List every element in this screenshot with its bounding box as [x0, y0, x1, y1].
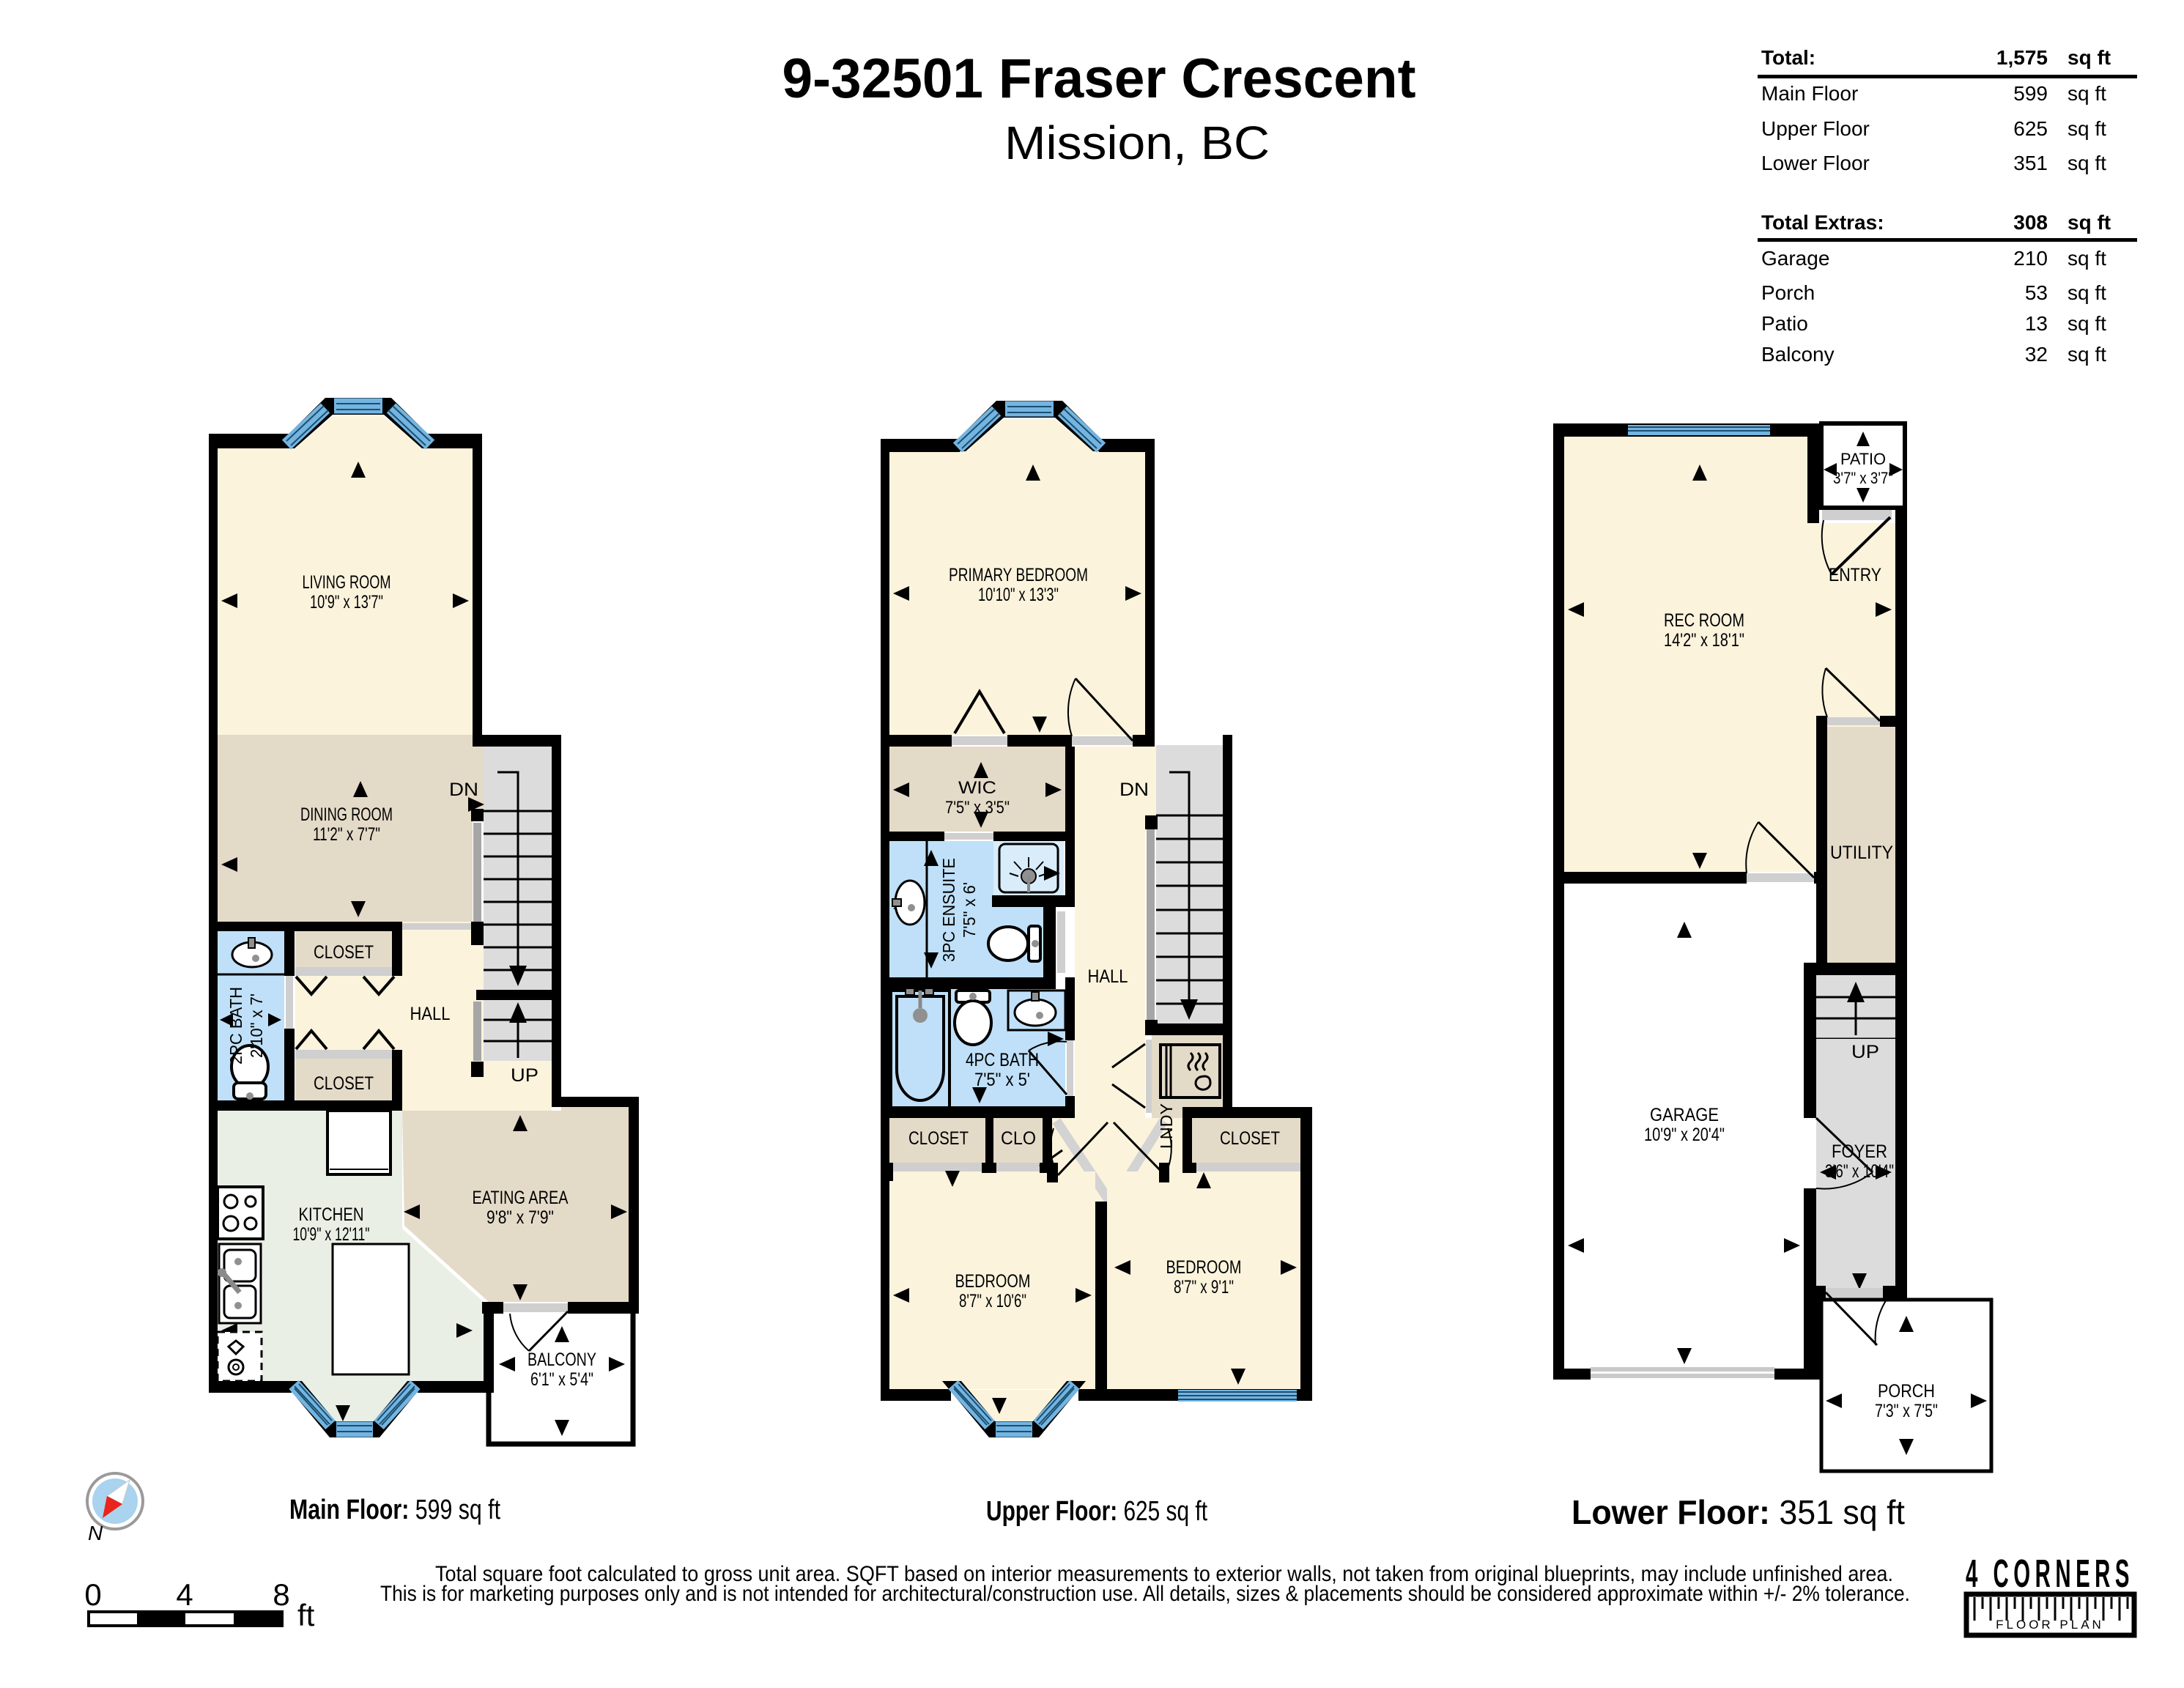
svg-text:BALCONY: BALCONY [528, 1350, 596, 1370]
svg-text:CLOSET: CLOSET [908, 1128, 969, 1149]
svg-text:Patio: Patio [1761, 312, 1808, 335]
svg-text:7'5" x 5': 7'5" x 5' [974, 1070, 1030, 1090]
svg-text:BEDROOM: BEDROOM [1166, 1257, 1242, 1278]
svg-text:4PC BATH: 4PC BATH [966, 1050, 1039, 1070]
svg-text:9'8" x 7'9": 9'8" x 7'9" [486, 1207, 554, 1228]
svg-text:ft: ft [297, 1598, 315, 1632]
svg-text:8: 8 [273, 1577, 289, 1612]
svg-text:CLOSET: CLOSET [1220, 1128, 1280, 1149]
svg-text:PRIMARY BEDROOM: PRIMARY BEDROOM [949, 565, 1088, 585]
svg-text:8'7" x 10'6": 8'7" x 10'6" [959, 1291, 1026, 1311]
svg-text:10'10" x 13'3": 10'10" x 13'3" [978, 585, 1059, 605]
svg-text:10'9" x 20'4": 10'9" x 20'4" [1644, 1125, 1725, 1145]
svg-text:CLOSET: CLOSET [314, 942, 374, 963]
svg-text:10'9" x 12'11": 10'9" x 12'11" [293, 1224, 370, 1245]
svg-text:3'7" x 3'7": 3'7" x 3'7" [1833, 469, 1893, 487]
svg-text:308: 308 [2013, 211, 2048, 234]
svg-text:HALL: HALL [1088, 966, 1128, 987]
svg-text:351: 351 [2013, 152, 2048, 174]
svg-text:10'9" x 13'7": 10'9" x 13'7" [310, 592, 383, 612]
svg-text:Mission, BC: Mission, BC [1004, 116, 1270, 169]
svg-text:sq ft: sq ft [2068, 152, 2106, 174]
svg-text:GARAGE: GARAGE [1650, 1105, 1719, 1125]
svg-text:Lower Floor: 351 sq ft: Lower Floor: 351 sq ft [1572, 1493, 1905, 1531]
svg-text:53: 53 [2025, 281, 2048, 304]
svg-text:sq ft: sq ft [2068, 247, 2106, 270]
svg-text:210: 210 [2013, 247, 2048, 270]
svg-text:0: 0 [84, 1577, 101, 1612]
svg-text:7'5" x 6': 7'5" x 6' [960, 882, 979, 938]
svg-text:CLO: CLO [1001, 1128, 1036, 1149]
svg-text:13: 13 [2025, 312, 2048, 335]
svg-text:HALL: HALL [410, 1004, 451, 1024]
svg-text:REC ROOM: REC ROOM [1664, 610, 1744, 631]
svg-text:6'1" x 5'4": 6'1" x 5'4" [530, 1369, 593, 1390]
svg-text:11'2" x 7'7": 11'2" x 7'7" [313, 824, 380, 845]
svg-text:Balcony: Balcony [1761, 343, 1835, 366]
svg-text:599: 599 [2013, 82, 2048, 105]
svg-text:Garage: Garage [1761, 247, 1829, 270]
svg-text:EATING AREA: EATING AREA [473, 1188, 569, 1208]
svg-text:UP: UP [511, 1065, 538, 1086]
svg-text:This is for marketing purposes: This is for marketing purposes only and … [380, 1582, 1910, 1606]
svg-text:sq ft: sq ft [2068, 343, 2106, 366]
svg-text:PORCH: PORCH [1878, 1381, 1935, 1402]
svg-text:32: 32 [2025, 343, 2048, 366]
svg-text:3PC ENSUITE: 3PC ENSUITE [939, 858, 958, 962]
svg-text:sq ft: sq ft [2068, 211, 2111, 234]
svg-text:N: N [88, 1522, 103, 1544]
svg-text:sq ft: sq ft [2068, 82, 2106, 105]
svg-text:Main Floor: Main Floor [1761, 82, 1858, 105]
svg-text:WIC: WIC [958, 778, 996, 798]
svg-text:Upper Floor: 625 sq ft: Upper Floor: 625 sq ft [986, 1496, 1207, 1527]
svg-text:14'2" x 18'1": 14'2" x 18'1" [1664, 630, 1744, 651]
svg-text:UTILITY: UTILITY [1830, 843, 1893, 863]
svg-text:LNDY: LNDY [1157, 1103, 1176, 1149]
svg-text:LIVING ROOM: LIVING ROOM [303, 572, 391, 593]
svg-text:DN: DN [1119, 780, 1149, 800]
svg-text:4 CORNERS: 4 CORNERS [1966, 1552, 2134, 1596]
svg-text:sq ft: sq ft [2068, 281, 2106, 304]
svg-text:Total:: Total: [1761, 46, 1815, 69]
svg-text:Total Extras:: Total Extras: [1761, 211, 1884, 234]
svg-text:CLOSET: CLOSET [314, 1073, 374, 1094]
svg-text:4: 4 [176, 1577, 193, 1612]
svg-text:8'7" x 9'1": 8'7" x 9'1" [1174, 1277, 1234, 1298]
svg-text:sq ft: sq ft [2068, 312, 2106, 335]
svg-text:DINING ROOM: DINING ROOM [300, 804, 393, 825]
svg-text:9-32501 Fraser Crescent: 9-32501 Fraser Crescent [782, 48, 1416, 110]
svg-text:2PC BATH: 2PC BATH [226, 987, 245, 1065]
svg-text:2'10" x 7': 2'10" x 7' [247, 993, 266, 1058]
svg-text:DN: DN [449, 780, 478, 800]
svg-text:Upper Floor: Upper Floor [1761, 117, 1870, 140]
svg-text:FLOOR PLAN: FLOOR PLAN [1996, 1618, 2104, 1632]
svg-text:7'3" x 7'5": 7'3" x 7'5" [1875, 1401, 1938, 1421]
svg-text:KITCHEN: KITCHEN [299, 1204, 364, 1225]
svg-text:1,575: 1,575 [1996, 46, 2048, 69]
svg-text:625: 625 [2013, 117, 2048, 140]
svg-text:sq ft: sq ft [2068, 117, 2106, 140]
svg-text:sq ft: sq ft [2068, 46, 2111, 69]
svg-text:Lower Floor: Lower Floor [1761, 152, 1870, 174]
svg-text:BEDROOM: BEDROOM [955, 1271, 1031, 1292]
svg-text:PATIO: PATIO [1840, 450, 1886, 468]
svg-text:UP: UP [1851, 1042, 1879, 1062]
svg-text:Porch: Porch [1761, 281, 1815, 304]
svg-text:Main Floor: 599 sq ft: Main Floor: 599 sq ft [289, 1495, 500, 1525]
